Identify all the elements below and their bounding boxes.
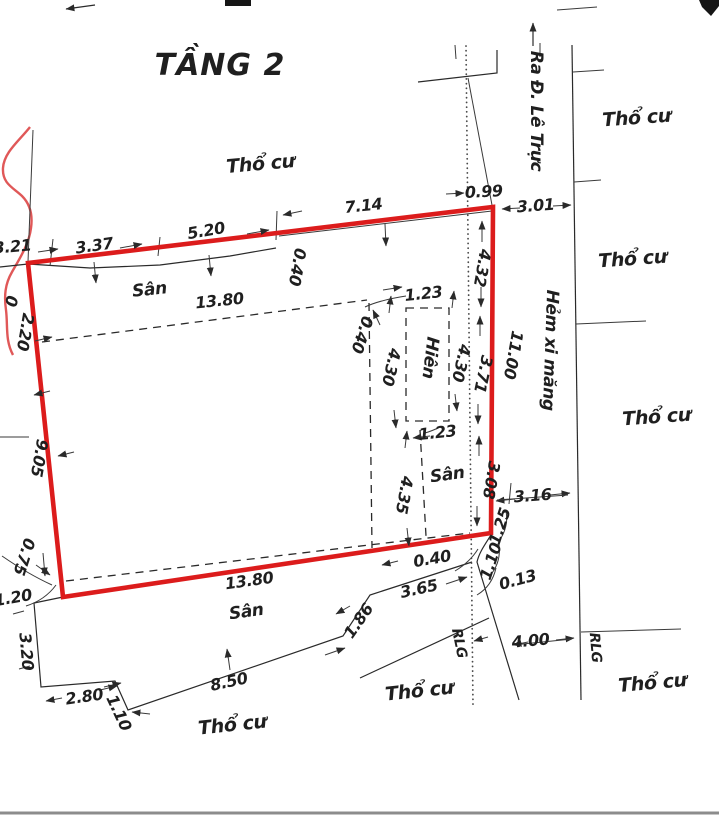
label-rlg-right: RLG: [586, 632, 605, 663]
alley-mouth-boundary: [418, 50, 497, 82]
dim-right-total: 11.00: [500, 329, 527, 380]
dim-corner-gap-1: 0.40: [412, 546, 453, 571]
road-boundary-line-left: [360, 618, 489, 678]
dim-yard-len-right: 4.35: [392, 474, 418, 516]
dim-tick-step: [276, 211, 277, 240]
dim-right-seg-3: 3.08: [479, 460, 504, 501]
scan-artifacts: [66, 0, 719, 16]
label-residential-bottom-right: Thổ cư: [617, 668, 690, 697]
dim-porch-len-left: 4.30: [378, 346, 405, 388]
dim-top-left-edge: 3.21: [0, 235, 32, 257]
dim-bottom-left-1: 1.20: [0, 585, 34, 610]
arrow-corner-bl: [43, 553, 45, 576]
east-tick-0: [557, 7, 597, 10]
dim-left-seg-low: 0.75: [9, 536, 39, 578]
north-arrow: [66, 5, 95, 9]
arrow-280-r: [104, 683, 121, 687]
arrow-040-btm: [382, 561, 398, 565]
label-residential-right-low: Thổ cư: [622, 402, 695, 430]
label-residential-right-mid: Thổ cư: [598, 244, 671, 272]
label-residential-bottom-left: Thổ cư: [197, 709, 270, 739]
label-residential-bottom-center: Thổ cư: [384, 675, 457, 705]
label-alley: Hẻm xi măng: [538, 289, 562, 411]
arrow-435-u: [405, 431, 407, 448]
arrow-075: [36, 565, 50, 575]
dim-porch-width-top: 1.23: [404, 282, 444, 305]
survey-drawing: TẦNG 2 Thổ cư Thổ cư Thổ cư Thổ cư Thổ c…: [0, 0, 719, 834]
label-rlg-left: RLG: [448, 627, 470, 660]
floorplan-canvas: TẦNG 2 Thổ cư Thổ cư Thổ cư Thổ cư Thổ c…: [0, 0, 719, 834]
dim-top-seg-3: 7.14: [344, 194, 384, 217]
dim-left-seg-top: 2.20: [13, 312, 38, 353]
east-tick-2: [574, 180, 601, 182]
arrow-yard-1: [94, 262, 96, 283]
dim-yard-width-top: 13.80: [194, 289, 245, 313]
dim-tick-320a: [13, 611, 24, 614]
dim-bottom-left-3: 2.80: [64, 684, 104, 708]
arrow-rlg-l: [474, 637, 488, 641]
arrow-186-a: [325, 648, 345, 655]
label-to-street: Ra Đ. Lê Trực: [526, 51, 546, 172]
arrow-430r-d: [455, 394, 457, 411]
dim-porch-len-right: 4.30: [448, 342, 475, 384]
dim-porch-offset: 0.40: [347, 314, 377, 356]
dim-porch-width-bottom: 1.23: [418, 421, 458, 444]
dim-right-gap-bottom: 3.16: [513, 485, 552, 507]
dim-alley-gap-top: 0.99: [464, 181, 503, 202]
dim-left-fragment: 0: [1, 294, 22, 308]
label-yard-top: Sân: [131, 278, 168, 302]
arrow-430r-u: [452, 291, 454, 308]
dim-alley-width-bottom: 4.00: [510, 629, 551, 651]
label-residential-top-center: Thổ cư: [225, 149, 298, 178]
dim-bottom-2: 1.86: [340, 600, 377, 642]
leader-123t: [365, 296, 406, 307]
arrow-123t: [383, 287, 402, 290]
arrow-110bl-b: [132, 712, 150, 714]
dim-alley-width-top: 3.01: [516, 195, 555, 217]
arrow-099: [446, 193, 464, 194]
arrow-430l-d: [394, 410, 396, 428]
label-residential-top-right: Thổ cư: [602, 103, 675, 131]
dim-bottom-3: 3.65: [398, 575, 439, 602]
page-title: TẦNG 2: [155, 43, 286, 83]
arrow-186-b: [336, 606, 350, 614]
dim-bottom-long: 8.50: [208, 668, 249, 695]
arrow-850: [227, 649, 230, 670]
dim-bottom-left-2: 3.20: [15, 632, 37, 672]
arrow-905: [58, 452, 74, 456]
leader-040-btm: [455, 549, 478, 571]
dim-top-step: 0.40: [285, 247, 310, 288]
east-tick-1: [573, 70, 604, 72]
arrow-321-r: [38, 249, 58, 252]
top-edge-mark: [225, 0, 251, 6]
label-yard-bottom: Sân: [228, 600, 265, 625]
east-alley-boundary: [572, 45, 581, 700]
arrow-110bl-a: [100, 686, 117, 690]
boundary-lines: [0, 7, 681, 710]
arrow-365: [446, 577, 467, 584]
east-tick-3: [576, 321, 646, 324]
label-yard-mid: Sân: [429, 463, 466, 488]
labels-layer: TẦNG 2 Thổ cư Thổ cư Thổ cư Thổ cư Thổ c…: [0, 43, 694, 740]
arrow-step-l: [283, 211, 302, 215]
arrow-280-l: [46, 698, 62, 701]
arrow-301-r: [553, 205, 571, 206]
interior-dashed-yard-right: [420, 430, 426, 536]
parcel-red-outline: [28, 207, 493, 597]
label-porch: Hiên: [417, 336, 442, 381]
top-tick-1: [455, 45, 456, 59]
top-right-corner-mark: [699, 0, 719, 16]
arrow-714: [385, 224, 386, 246]
dim-corner-gap-2: 0.13: [497, 566, 539, 594]
dim-tick-316: [509, 483, 511, 504]
dim-bottom-left-4: 1.10: [102, 691, 135, 734]
